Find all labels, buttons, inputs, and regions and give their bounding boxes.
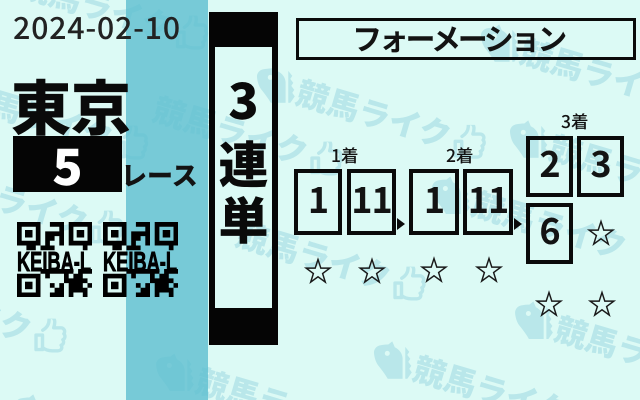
svg-text:KEIBA-L: KEIBA-L [103,246,177,277]
svg-text:KEIBA-L: KEIBA-L [17,246,91,277]
